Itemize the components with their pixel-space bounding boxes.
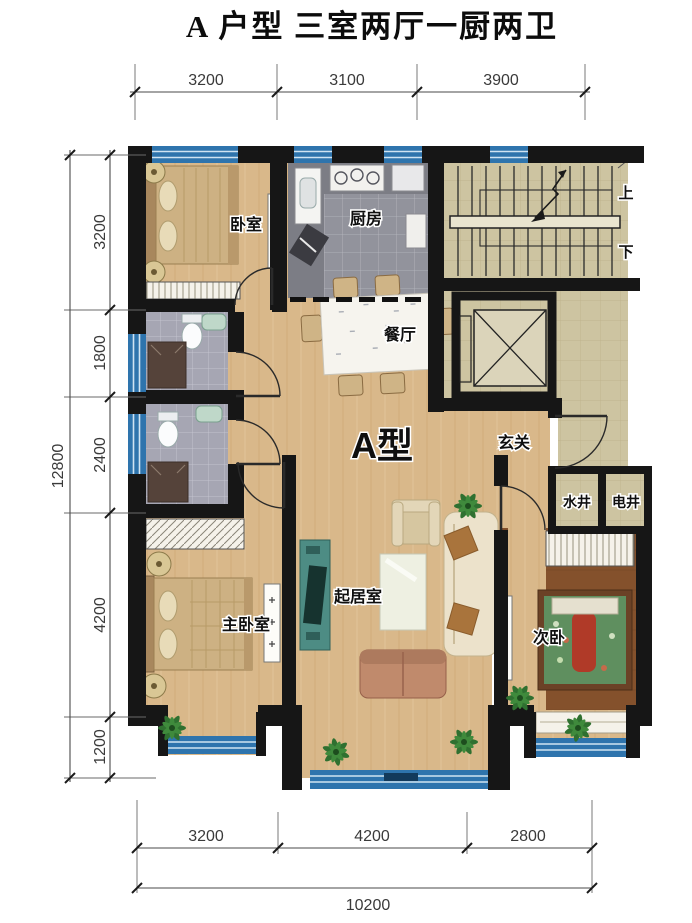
window-tag [384, 773, 418, 781]
pillow [159, 221, 177, 251]
sink-1 [202, 314, 226, 330]
master-wardrobe [146, 519, 244, 549]
dimension-top: 3200 3100 3900 [130, 64, 590, 120]
kitchen-cabinet [406, 214, 426, 248]
window-living-bay [310, 770, 488, 789]
wall-master-top [128, 504, 240, 518]
dining-chair [301, 315, 322, 342]
floorplan-drawing: A 户型 三室两厅一厨两卫 [0, 0, 692, 923]
dining-chair [338, 375, 363, 396]
label-water-shaft: 水井 [563, 494, 591, 510]
second-wardrobe [546, 531, 634, 566]
wall-right [636, 530, 652, 726]
armchair-arm [392, 502, 403, 546]
label-stairs-down: 下 [618, 244, 633, 261]
label-dining-room: 餐厅 [383, 325, 416, 344]
toilet-tank-2 [158, 412, 178, 421]
dimension-bottom: 3200 4200 2800 10200 [132, 800, 597, 914]
dim-left-total: 12800 [50, 444, 67, 489]
dim-bottom-3: 2800 [510, 828, 546, 845]
dim-left-3: 2400 [92, 437, 109, 473]
dim-left-1: 3200 [92, 214, 109, 250]
label-kitchen: 厨房 [350, 209, 382, 228]
dim-top-3: 3900 [483, 72, 519, 89]
dining-chair [380, 373, 405, 394]
sink-2 [196, 406, 222, 422]
dim-left-2: 1800 [92, 335, 109, 371]
label-unit-type: A型 [351, 425, 413, 466]
wall-second-left-b [494, 530, 508, 726]
dining-chair [333, 277, 358, 298]
floorplan-page: A 户型 三室两厅一厨两卫 [0, 0, 692, 923]
label-entry: 玄关 [498, 433, 530, 452]
window-master-bay [168, 736, 256, 754]
window-kitchen-1 [294, 146, 332, 163]
label-stairs-up: 上 [618, 185, 633, 202]
pillow [159, 591, 177, 621]
wall-bath-right-a [228, 312, 244, 352]
dim-bottom-2: 4200 [354, 828, 390, 845]
dim-top-1: 3200 [188, 72, 224, 89]
bedroom-wardrobe [146, 282, 240, 299]
window-bathroom-1 [128, 334, 146, 392]
dining-table [320, 293, 434, 375]
pillow [159, 629, 177, 659]
bed-foot [228, 166, 238, 264]
wall-living-pillar-left [282, 705, 302, 790]
second-bed-pillow [552, 598, 618, 614]
pillow [159, 181, 177, 211]
dim-left-5: 1200 [92, 729, 109, 765]
dim-bottom-1: 3200 [188, 828, 224, 845]
label-bedroom: 卧室 [230, 215, 262, 234]
window-kitchen-2 [384, 146, 422, 163]
dim-top-2: 3100 [329, 72, 365, 89]
label-electric-shaft: 电井 [612, 494, 640, 510]
dim-bottom-total: 10200 [346, 897, 391, 914]
toilet-2 [158, 421, 178, 447]
wall-below-stairs [442, 278, 640, 291]
armchair-arm [429, 502, 440, 546]
toilet-tank-1 [182, 314, 202, 323]
dining-chair [375, 275, 400, 296]
wall-second-left-a [494, 455, 508, 486]
second-bed-figure [572, 612, 596, 672]
wall-kitchen-right [428, 146, 444, 412]
dim-left-4: 4200 [92, 597, 109, 633]
label-master-bedroom: 主卧室 [222, 615, 270, 634]
window-bedroom-top [152, 146, 238, 163]
page-title: A 户型 三室两厅一厨两卫 [186, 9, 558, 44]
window-stairwell [490, 146, 528, 163]
floor-corridor [558, 290, 628, 468]
shower-1 [148, 342, 186, 388]
wall-below-elevator [442, 398, 560, 411]
window-bathroom-2 [128, 414, 146, 474]
kitchen-appliance [392, 165, 424, 191]
coffee-table [380, 554, 426, 630]
label-second-bedroom: 次卧 [533, 628, 565, 647]
elevator [456, 296, 552, 396]
window-second-bay [536, 738, 626, 757]
wall-bedroom-bottom [146, 299, 235, 312]
armchair-seat [403, 512, 429, 544]
label-living-room: 起居室 [333, 587, 382, 606]
